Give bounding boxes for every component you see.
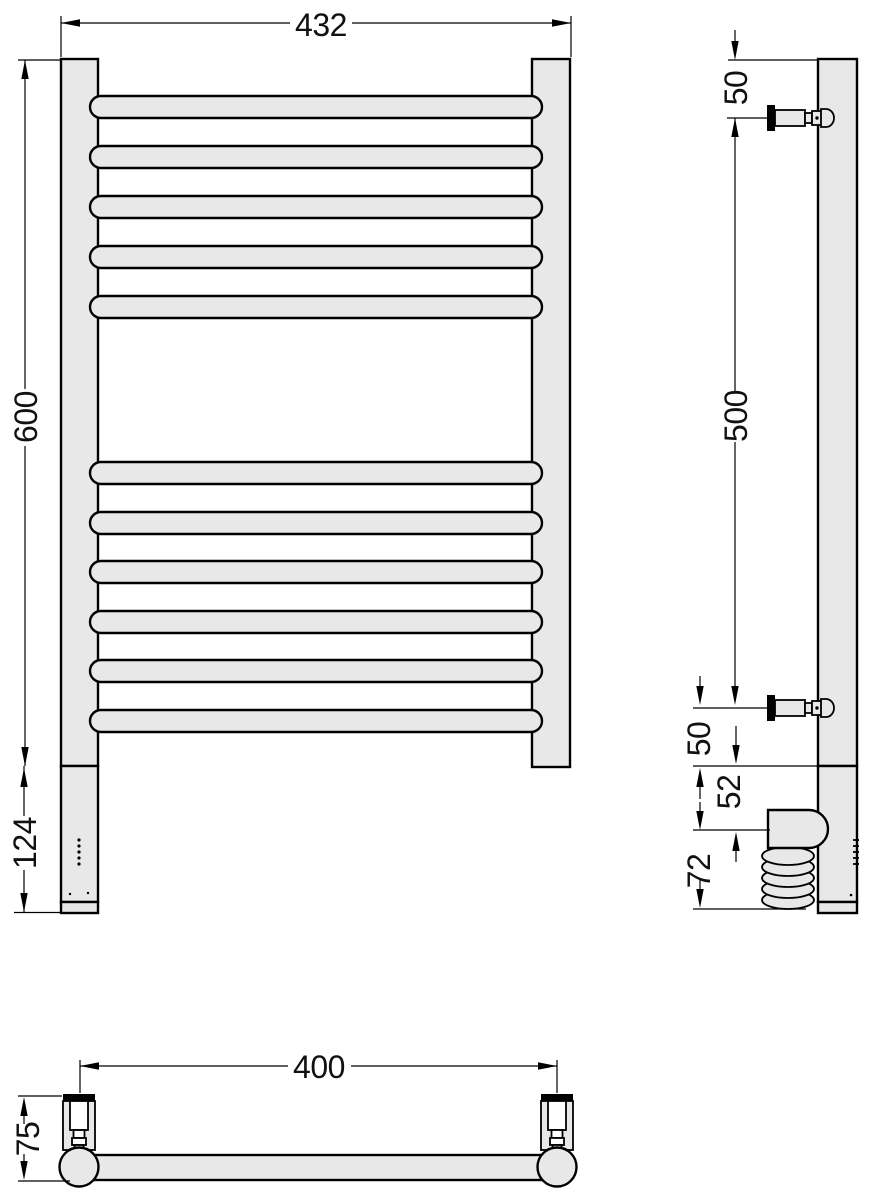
- dim-label-width: 432: [295, 7, 347, 43]
- towel-bar: [90, 611, 542, 633]
- dim-label-element-offset: 52: [711, 775, 747, 810]
- dimension-heater-height: 124: [7, 766, 60, 913]
- heater-housing: [61, 766, 98, 902]
- towel-bar: [90, 296, 542, 318]
- dimension-bracket-span: 500: [718, 118, 770, 705]
- dim-label-bottom-offset: 50: [681, 722, 717, 757]
- dim-label-bracket-span: 500: [718, 390, 754, 442]
- dimension-bracket-centres: 400: [80, 1049, 557, 1093]
- dimension-height: 600: [8, 60, 60, 766]
- bottom-bar-group: [90, 462, 542, 732]
- spiral-cord: [762, 847, 814, 909]
- bottom-rail: [79, 1155, 557, 1180]
- towel-bar: [90, 561, 542, 583]
- wall-bracket-bottom: [767, 695, 834, 721]
- dim-label-height: 600: [8, 391, 44, 443]
- dimension-top-offset: 50: [718, 30, 818, 105]
- dimension-bottom-offset: 50: [681, 676, 818, 799]
- towel-bar: [90, 462, 542, 484]
- dimension-element-offset: 52: [693, 775, 770, 862]
- front-view: 432 600 124: [7, 7, 571, 913]
- heating-element: [768, 810, 828, 848]
- towel-bar: [90, 146, 542, 168]
- dim-label-element-height: 72: [681, 854, 717, 889]
- dim-label-top-offset: 50: [718, 71, 754, 106]
- dim-label-bracket-centres: 400: [293, 1049, 345, 1085]
- side-post: [818, 59, 857, 766]
- dim-label-heater-height: 124: [7, 817, 43, 869]
- bottom-view: 400 75: [10, 1049, 577, 1187]
- wall-bracket-top: [767, 105, 834, 131]
- towel-bar: [90, 196, 542, 218]
- towel-bar: [90, 512, 542, 534]
- wall-mount-left: [60, 1094, 99, 1187]
- side-bottom-cap: [818, 902, 857, 913]
- towel-bar: [90, 96, 542, 118]
- towel-bar: [90, 660, 542, 682]
- towel-bar: [90, 710, 542, 732]
- top-bar-group: [90, 96, 542, 318]
- technical-drawing-page: 432 600 124: [0, 0, 871, 1200]
- heater-bottom-cap: [61, 902, 98, 913]
- dimension-width: 432: [61, 7, 571, 57]
- towel-rail-drawing: 432 600 124: [0, 0, 871, 1200]
- side-view: 50 500 50 52: [681, 30, 859, 913]
- wall-mount-right: [538, 1094, 577, 1187]
- dim-label-depth: 75: [10, 1122, 46, 1157]
- towel-bar: [90, 246, 542, 268]
- dimension-element-height: 72: [681, 854, 717, 908]
